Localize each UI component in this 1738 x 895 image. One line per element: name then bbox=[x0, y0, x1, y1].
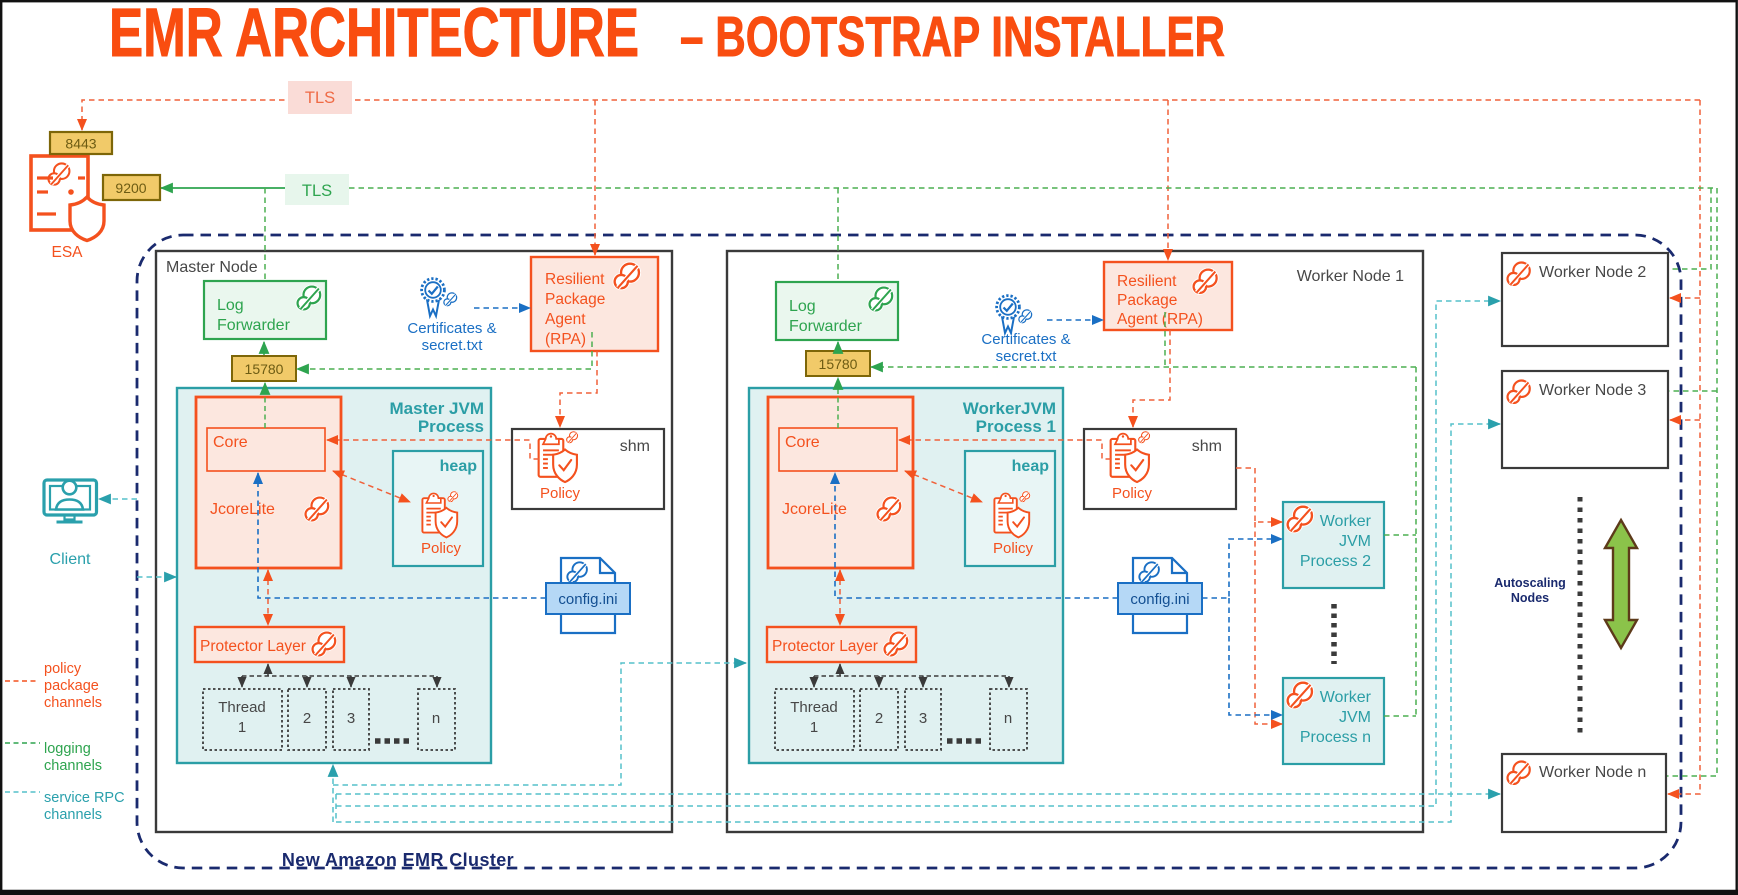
svg-text:Thread: Thread bbox=[218, 699, 266, 716]
svg-text:2: 2 bbox=[303, 710, 311, 727]
svg-text:TLS: TLS bbox=[305, 89, 335, 107]
svg-text:policy: policy bbox=[44, 661, 82, 677]
svg-text:Worker Node 1: Worker Node 1 bbox=[1297, 268, 1404, 285]
svg-text:Worker: Worker bbox=[1320, 513, 1372, 530]
svg-text:Policy: Policy bbox=[1112, 485, 1153, 502]
svg-text:JcoreLite: JcoreLite bbox=[782, 501, 847, 518]
svg-text:Resilient: Resilient bbox=[1117, 273, 1177, 290]
svg-text:Policy: Policy bbox=[993, 540, 1034, 557]
svg-text:Process: Process bbox=[418, 417, 484, 436]
svg-text:shm: shm bbox=[620, 438, 650, 455]
svg-text:2: 2 bbox=[875, 710, 883, 727]
svg-text:Master JVM: Master JVM bbox=[390, 399, 484, 418]
svg-text:15780: 15780 bbox=[819, 356, 858, 372]
svg-text:Policy: Policy bbox=[421, 540, 462, 557]
svg-text:1: 1 bbox=[810, 719, 818, 736]
svg-text:Forwarder: Forwarder bbox=[217, 317, 291, 334]
svg-text:channels: channels bbox=[44, 695, 102, 711]
svg-text:service RPC: service RPC bbox=[44, 790, 125, 806]
svg-text:Policy: Policy bbox=[540, 485, 581, 502]
svg-text:Worker Node 3: Worker Node 3 bbox=[1539, 382, 1646, 399]
svg-text:Client: Client bbox=[50, 551, 91, 568]
svg-text:heap: heap bbox=[1012, 458, 1050, 475]
svg-text:package: package bbox=[44, 678, 99, 694]
svg-text:n: n bbox=[432, 710, 440, 727]
svg-text:Protector Layer: Protector Layer bbox=[772, 638, 878, 655]
svg-text:Certificates &: Certificates & bbox=[981, 331, 1070, 348]
svg-text:JcoreLite: JcoreLite bbox=[210, 501, 275, 518]
svg-text:Process 2: Process 2 bbox=[1300, 553, 1371, 570]
svg-text:Package: Package bbox=[545, 291, 605, 308]
svg-text:Worker Node n: Worker Node n bbox=[1539, 764, 1646, 781]
svg-text:channels: channels bbox=[44, 807, 102, 823]
svg-text:WorkerJVM: WorkerJVM bbox=[963, 399, 1056, 418]
svg-text:TLS: TLS bbox=[302, 182, 332, 200]
svg-text:Worker: Worker bbox=[1320, 689, 1372, 706]
svg-text:Core: Core bbox=[785, 434, 820, 451]
svg-text:Master Node: Master Node bbox=[166, 259, 258, 276]
svg-text:shm: shm bbox=[1192, 438, 1222, 455]
svg-text:8443: 8443 bbox=[65, 136, 96, 152]
svg-text:Agent (RPA): Agent (RPA) bbox=[1117, 311, 1203, 328]
svg-text:channels: channels bbox=[44, 758, 102, 774]
svg-text:Package: Package bbox=[1117, 292, 1177, 309]
svg-text:Autoscaling: Autoscaling bbox=[1494, 576, 1566, 590]
svg-text:3: 3 bbox=[347, 710, 355, 727]
svg-text:Resilient: Resilient bbox=[545, 271, 605, 288]
svg-text:Process n: Process n bbox=[1300, 729, 1371, 746]
svg-text:EMR ARCHITECTURE: EMR ARCHITECTURE bbox=[109, 0, 639, 71]
svg-text:15780: 15780 bbox=[245, 361, 284, 377]
svg-text:Process 1: Process 1 bbox=[976, 417, 1056, 436]
svg-text:Forwarder: Forwarder bbox=[789, 318, 863, 335]
svg-text:9200: 9200 bbox=[115, 180, 146, 196]
svg-text:Certificates &: Certificates & bbox=[407, 320, 496, 337]
svg-text:– BOOTSTRAP INSTALLER: – BOOTSTRAP INSTALLER bbox=[680, 5, 1225, 69]
svg-text:(RPA): (RPA) bbox=[545, 331, 586, 348]
svg-text:config.ini: config.ini bbox=[1130, 591, 1189, 608]
svg-text:secret.txt: secret.txt bbox=[996, 348, 1058, 365]
svg-text:New Amazon EMR Cluster: New Amazon EMR Cluster bbox=[282, 850, 514, 870]
svg-text:Worker Node 2: Worker Node 2 bbox=[1539, 264, 1646, 281]
svg-text:JVM: JVM bbox=[1339, 709, 1371, 726]
svg-text:Protector Layer: Protector Layer bbox=[200, 638, 306, 655]
svg-text:secret.txt: secret.txt bbox=[422, 337, 484, 354]
svg-text:n: n bbox=[1004, 710, 1012, 727]
svg-text:Log: Log bbox=[789, 298, 816, 315]
svg-text:1: 1 bbox=[238, 719, 246, 736]
svg-text:Core: Core bbox=[213, 434, 248, 451]
svg-text:ESA: ESA bbox=[51, 244, 83, 261]
svg-text:config.ini: config.ini bbox=[558, 591, 617, 608]
svg-text:heap: heap bbox=[440, 458, 478, 475]
svg-text:3: 3 bbox=[919, 710, 927, 727]
svg-text:Thread: Thread bbox=[790, 699, 838, 716]
svg-text:Log: Log bbox=[217, 297, 244, 314]
svg-text:JVM: JVM bbox=[1339, 533, 1371, 550]
svg-text:Agent: Agent bbox=[545, 311, 586, 328]
svg-text:logging: logging bbox=[44, 741, 91, 757]
svg-text:Nodes: Nodes bbox=[1511, 591, 1549, 605]
